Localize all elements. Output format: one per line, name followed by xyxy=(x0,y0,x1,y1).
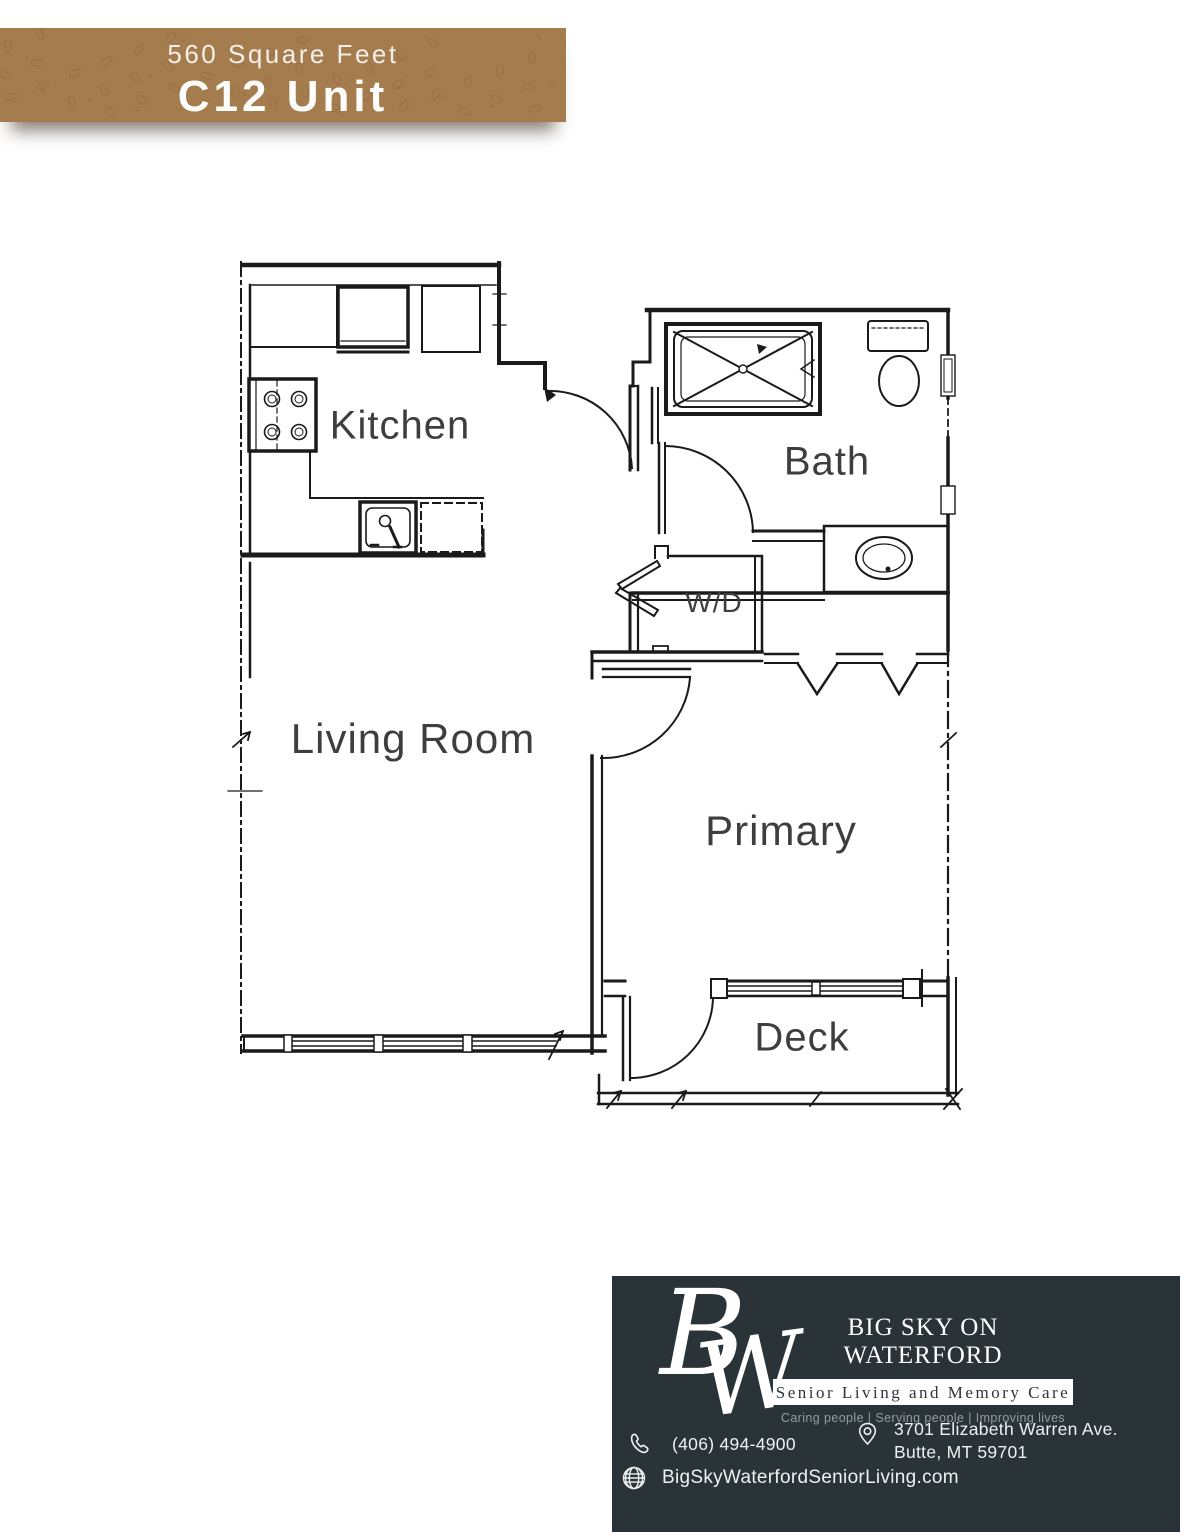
phone-number: (406) 494-4900 xyxy=(672,1434,796,1455)
division-banner: Senior Living and Memory Care xyxy=(773,1379,1073,1405)
brand-footer-card: B W BIG SKY ON WATERFORD Senior Living a… xyxy=(612,1276,1180,1532)
kitchen-sink xyxy=(360,502,416,553)
deck-slider-window xyxy=(711,970,948,1006)
address-row: 3701 Elizabeth Warren Ave. Butte, MT 597… xyxy=(856,1418,1118,1464)
washer-dryer-label: W/D xyxy=(685,587,742,619)
bath-toilet xyxy=(868,321,928,406)
kitchen-pantry-cabinet xyxy=(422,286,480,352)
primary-label: Primary xyxy=(705,807,857,855)
entry-door xyxy=(544,386,638,470)
bath-label: Bath xyxy=(784,440,870,485)
phone-row: (406) 494-4900 xyxy=(627,1431,796,1457)
location-pin-icon xyxy=(856,1418,879,1449)
bath-shower xyxy=(666,324,820,414)
deck-label: Deck xyxy=(754,1016,849,1061)
phone-icon xyxy=(627,1431,653,1457)
globe-icon xyxy=(620,1464,648,1492)
kitchen-stove xyxy=(249,379,316,451)
primary-closet xyxy=(765,654,948,694)
bath-vanity-sink xyxy=(824,526,948,592)
kitchen-dishwasher xyxy=(421,503,482,552)
flyer-page: 560 Square Feet C12 Unit xyxy=(0,0,1187,1536)
deck-door xyxy=(605,981,713,1080)
website-url: BigSkyWaterfordSeniorLiving.com xyxy=(662,1467,959,1489)
website-row: BigSkyWaterfordSeniorLiving.com xyxy=(620,1464,959,1492)
living-room-label: Living Room xyxy=(291,715,535,763)
address-text: 3701 Elizabeth Warren Ave. Butte, MT 597… xyxy=(894,1418,1118,1464)
brand-block: BIG SKY ON WATERFORD Senior Living and M… xyxy=(773,1314,1073,1425)
primary-door xyxy=(601,669,690,758)
address-line1: 3701 Elizabeth Warren Ave. xyxy=(894,1419,1118,1439)
bath-door xyxy=(659,443,753,533)
kitchen-fridge xyxy=(338,287,408,352)
address-line2: Butte, MT 59701 xyxy=(894,1442,1028,1462)
kitchen-label: Kitchen xyxy=(330,404,470,449)
kitchen-counter xyxy=(310,451,483,498)
brand-name: BIG SKY ON WATERFORD xyxy=(773,1314,1073,1370)
living-room-window-wall xyxy=(243,1031,605,1059)
